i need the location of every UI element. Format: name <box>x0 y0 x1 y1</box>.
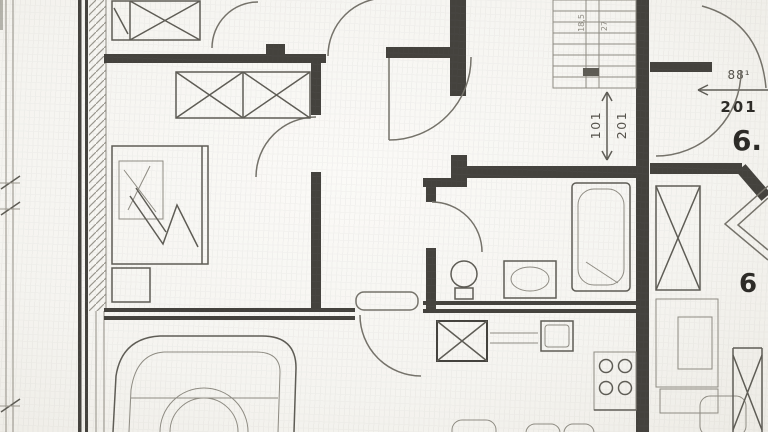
left-dimension-line <box>0 0 20 432</box>
sofa <box>113 336 296 432</box>
door-width-label: 88¹ <box>727 68 750 82</box>
stove <box>594 352 636 410</box>
stair-door-dimension: 101 201 <box>588 92 629 160</box>
bed <box>112 146 208 264</box>
kitchen-sink <box>490 321 573 351</box>
wardrobe-bedroom <box>176 72 310 118</box>
exterior-wall-hatched <box>78 0 106 432</box>
stair-dimension-note: 27 <box>600 21 609 31</box>
door-arc-bathroom <box>432 202 482 252</box>
door-kitchen <box>356 292 421 376</box>
staircase: 18,5 27 <box>553 0 636 88</box>
unit-number: 6. <box>732 124 762 157</box>
washbasin <box>504 261 556 298</box>
door-arc-bedroom <box>256 117 316 177</box>
bathtub <box>572 183 630 291</box>
interior-walls <box>104 0 766 432</box>
nightstand <box>112 268 150 302</box>
dining-chairs <box>452 420 594 432</box>
shaft-kitchen <box>437 321 487 361</box>
unit-number: 6 <box>739 269 757 299</box>
door-width-label: 101 <box>588 111 603 139</box>
wardrobe-bottom-right <box>733 348 762 432</box>
door-height-label: 201 <box>614 111 629 139</box>
door-arc-top-center <box>328 0 386 56</box>
shaft-bathroom <box>656 186 700 290</box>
wardrobe-top-left <box>112 1 200 40</box>
door-height-label: 201 <box>720 98 757 116</box>
floor-plan-drawing: 18,5 27 101 201 88¹ 201 6. 6 <box>0 0 768 432</box>
stair-dimension-note: 18,5 <box>577 14 586 32</box>
floor-plan-scan: 18,5 27 101 201 88¹ 201 6. 6 <box>0 0 768 432</box>
door-arc-top-left <box>212 2 258 48</box>
coffee-table <box>160 388 248 432</box>
toilet <box>451 261 477 299</box>
